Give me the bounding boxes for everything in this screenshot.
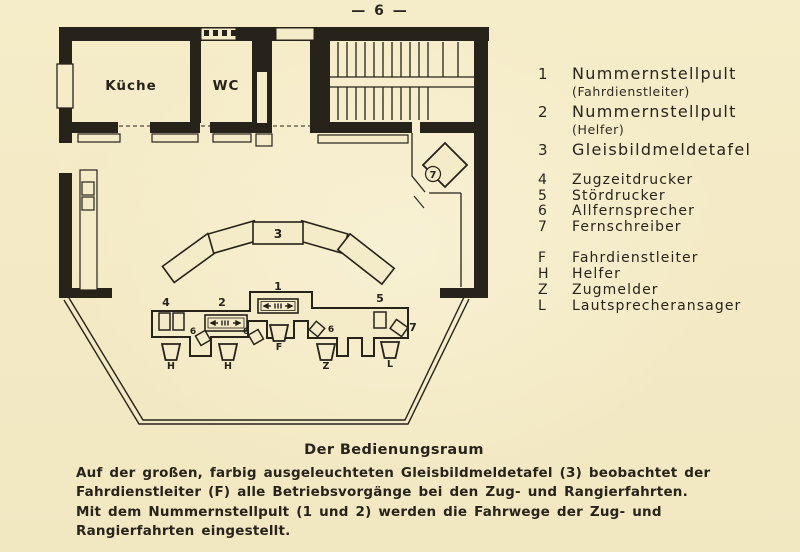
label-2: 2 — [218, 296, 226, 309]
legend-item-z: Z Zugmelder — [538, 282, 796, 298]
label-6: 6 — [243, 327, 249, 337]
legend-label: Gleisbildmeldetafel — [572, 140, 751, 159]
stoerdrucker — [374, 312, 386, 328]
legend-item-5: 5 Stördrucker — [538, 189, 796, 205]
legend-label: Nummernstellpult — [572, 102, 737, 121]
legend-key: 3 — [538, 141, 572, 160]
legend-label: Zugzeitdrucker — [572, 173, 693, 189]
phone-diamond — [248, 329, 263, 344]
window-top-room — [276, 28, 314, 40]
legend-label: Allfernsprecher — [572, 204, 695, 220]
wall-niche — [257, 72, 267, 123]
panel3-label: 3 — [274, 227, 282, 241]
bench — [152, 134, 198, 142]
legend-label: Zugmelder — [572, 282, 659, 298]
label-seat-z: Z — [323, 361, 330, 372]
label-6: 6 — [190, 327, 196, 337]
chair-zugmelder — [317, 344, 335, 360]
legend-item-4: 4 Zugzeitdrucker — [538, 173, 796, 189]
cabinet-small — [256, 134, 272, 146]
vent-tick — [204, 30, 209, 36]
legend-persons: F Fahrdienstleiter H Helfer Z Zugmelder … — [538, 250, 796, 314]
door-leaf — [414, 196, 424, 208]
display-panel-arc: 3 — [162, 221, 394, 284]
bench-below-stairs — [318, 135, 408, 143]
legend-label: Nummernstellpult — [572, 64, 737, 83]
panel2-symbols — [211, 321, 240, 326]
label-seat-h: H — [224, 361, 232, 372]
label-seat-l: L — [387, 359, 393, 370]
benches — [78, 134, 408, 146]
wall-top — [59, 27, 489, 41]
legend-label: Lautsprecheransager — [572, 298, 741, 314]
vent-tick — [231, 30, 236, 36]
legend-item-3: 3 Gleisbildmeldetafel — [538, 140, 796, 160]
label-seat-f: F — [276, 342, 283, 353]
chair-helfer-2 — [219, 344, 237, 360]
legend-item-f: F Fahrdienstleiter — [538, 250, 796, 266]
legend-key: 6 — [538, 204, 572, 220]
zugzeitdrucker — [173, 313, 184, 330]
wall-right — [474, 27, 488, 298]
cabinet-box — [82, 197, 94, 210]
bench — [78, 134, 120, 142]
caption-paragraph-1: Auf der großen, farbig ausgeleuchteten G… — [76, 464, 776, 502]
door-left — [57, 143, 73, 173]
caption-paragraph-2: Mit dem Nummernstellpult (1 und 2) werde… — [76, 503, 786, 541]
legend-item-h: H Helfer — [538, 266, 796, 282]
wc-label: WC — [213, 78, 240, 94]
legend-item-7: 7 Fernschreiber — [538, 220, 796, 236]
chair-lautsprecheransager — [381, 342, 399, 358]
wall-kitchen-wc — [190, 40, 201, 123]
label-6: 6 — [328, 325, 334, 335]
legend-key: 1 — [538, 65, 572, 84]
panel1-symbols — [264, 304, 292, 309]
legend-key: L — [538, 298, 572, 314]
legend-secondary: 4 Zugzeitdrucker 5 Stördrucker 6 Allfern… — [538, 173, 796, 235]
legend: 1 Nummernstellpult (Fahrdienstleiter) 2 … — [538, 64, 796, 314]
wall-stub-right — [440, 288, 488, 298]
legend-sub: (Helfer) — [572, 122, 796, 137]
chair-fahrdienstleiter — [270, 325, 288, 341]
legend-key: 5 — [538, 189, 572, 205]
legend-key: H — [538, 266, 572, 282]
label-seat-h: H — [167, 361, 175, 372]
zugzeitdrucker — [159, 313, 170, 330]
legend-key: Z — [538, 282, 572, 298]
legend-label: Stördrucker — [572, 189, 666, 205]
legend-sub: (Fahrdienstleiter) — [572, 84, 796, 99]
wall-openings — [57, 28, 314, 173]
legend-item-6: 6 Allfernsprecher — [538, 204, 796, 220]
label-1: 1 — [274, 280, 282, 293]
bench — [213, 134, 251, 142]
teleprinter-room: 7 — [412, 133, 467, 287]
wall-corridor-c — [210, 122, 272, 133]
legend-key: 7 — [538, 220, 572, 236]
legend-item-1: 1 Nummernstellpult — [538, 64, 796, 84]
room7-label: 7 — [430, 170, 437, 181]
legend-label: Helfer — [572, 266, 621, 282]
panel-segment — [208, 221, 260, 253]
chair-helfer-1 — [162, 344, 180, 360]
staircase — [330, 42, 474, 120]
caption-title: Der Bedienungsraum — [0, 442, 788, 458]
label-5: 5 — [376, 292, 384, 305]
legend-primary: 1 Nummernstellpult (Fahrdienstleiter) 2 … — [538, 64, 796, 160]
legend-label: Fahrdienstleiter — [572, 250, 699, 266]
label-7: 7 — [409, 321, 417, 334]
wall-below-stairs — [313, 122, 412, 133]
legend-item-2: 2 Nummernstellpult — [538, 102, 796, 122]
wall-below-stairs-right — [420, 122, 474, 133]
panel-segment — [338, 234, 394, 284]
legend-key: 2 — [538, 103, 572, 122]
legend-key: 4 — [538, 173, 572, 189]
window-left-upper — [57, 64, 73, 108]
left-cabinet — [80, 170, 97, 290]
legend-key: F — [538, 250, 572, 266]
wall-room-stairs — [310, 40, 330, 133]
wall-corridor-a — [72, 122, 118, 133]
wall-corridor-b — [150, 122, 200, 133]
kitchen-label: Küche — [105, 78, 157, 94]
legend-label: Fernschreiber — [572, 220, 682, 236]
cabinet-box — [82, 182, 94, 195]
vent-tick — [222, 30, 227, 36]
label-4: 4 — [162, 296, 170, 309]
vent-tick — [213, 30, 218, 36]
legend-item-l: L Lautsprecheransager — [538, 298, 796, 314]
